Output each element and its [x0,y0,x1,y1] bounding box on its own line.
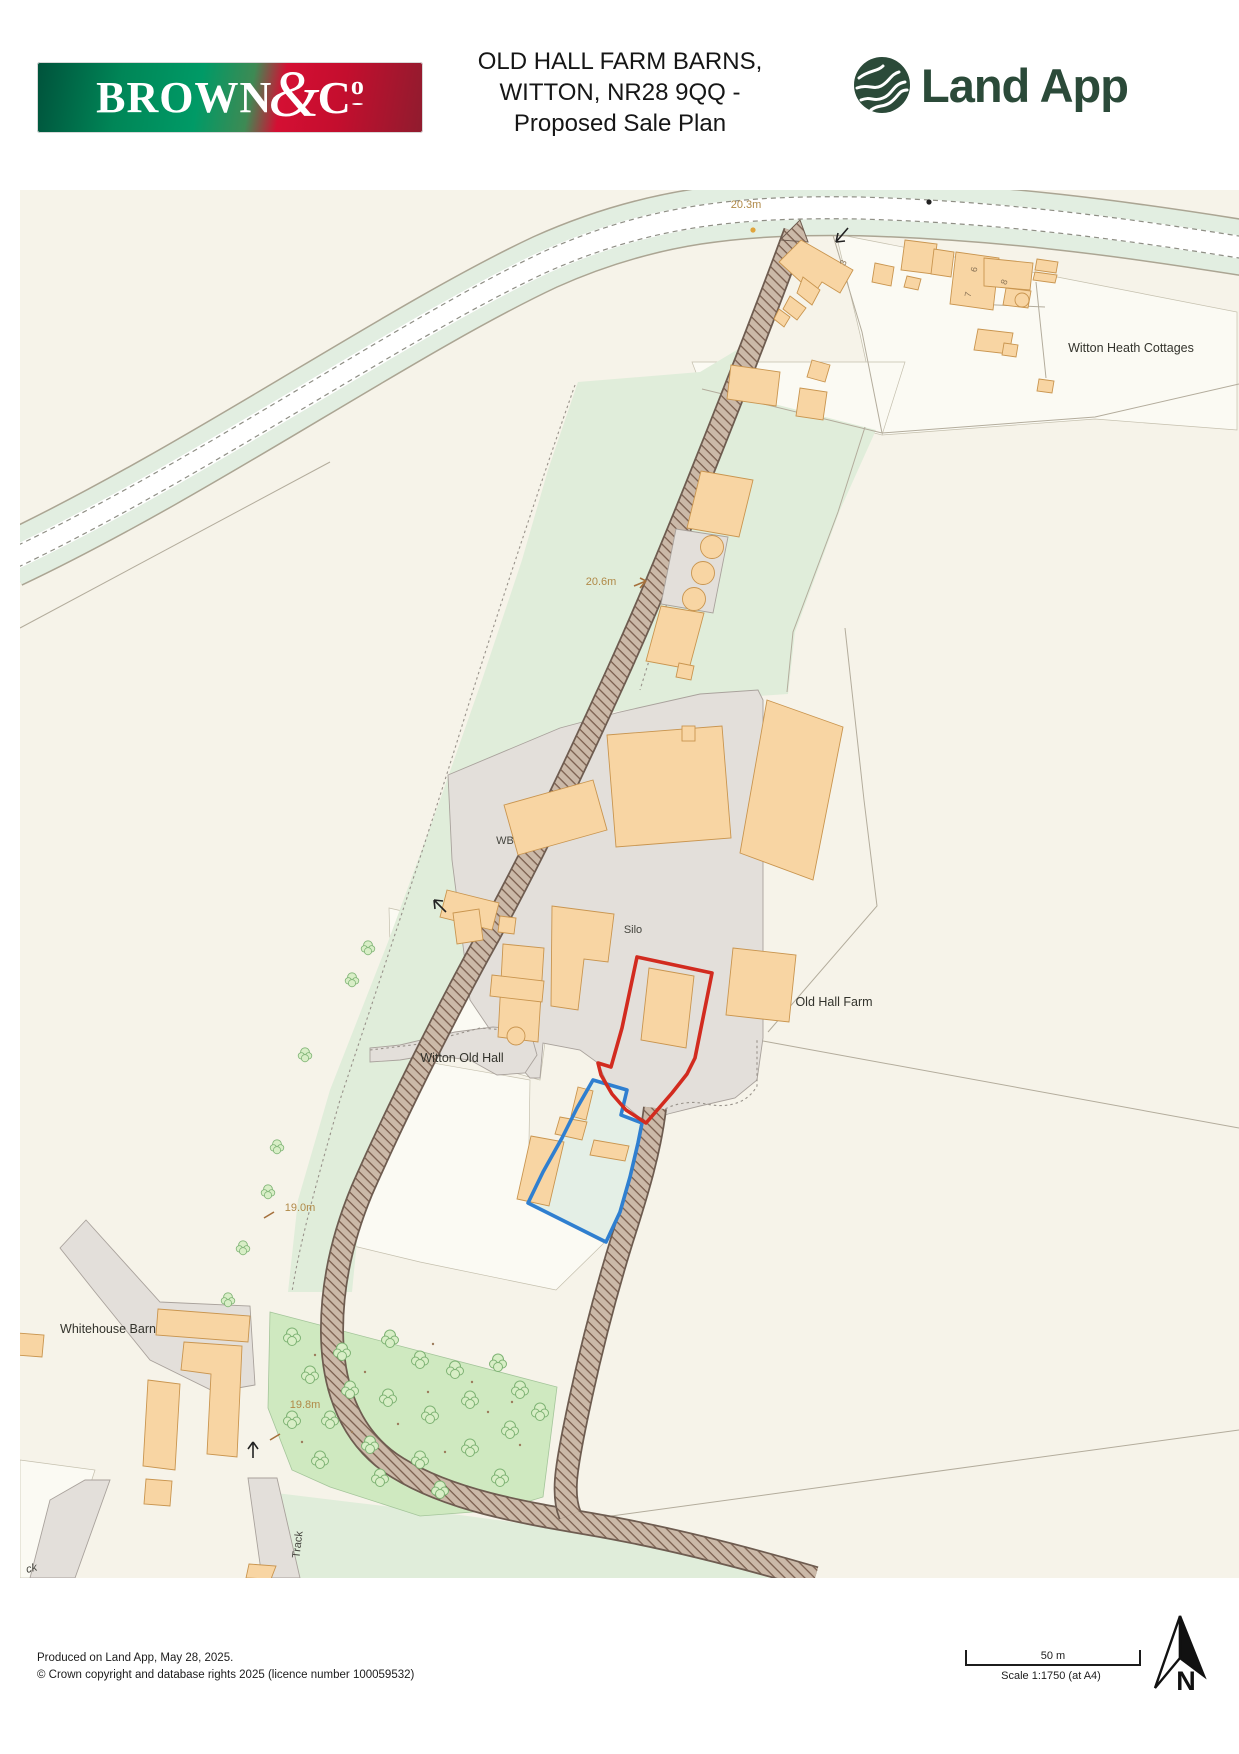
north-arrow-icon: N [1142,1614,1214,1694]
label-whitehouse-barn: Whitehouse Barn [60,1322,156,1336]
label-old-hall-farm: Old Hall Farm [795,995,872,1009]
label-witton-old-hall: Witton Old Hall [420,1051,503,1065]
elevation-label-20-3: 20.3m [731,199,762,211]
copyright-text: © Crown copyright and database rights 20… [37,1669,414,1681]
produced-on-text: Produced on Land App, May 28, 2025. [37,1652,233,1664]
sale-plan-map: 20.3m 20.6m 19.0m 19.8m Witton Heath Cot… [0,0,1239,1754]
elevation-label-20-6: 20.6m [586,576,617,588]
north-arrow: N [1142,1614,1214,1699]
map-canvas: 20.3m 20.6m 19.0m 19.8m Witton Heath Cot… [10,190,1239,1579]
label-silo: Silo [624,924,642,936]
label-witton-heath-cottages: Witton Heath Cottages [1068,341,1194,355]
scale-bar-label: 50 m [1041,1650,1065,1662]
label-wb: WB [496,835,514,847]
elevation-label-19-0: 19.0m [285,1202,316,1214]
road-spot-marker [750,227,755,232]
junction-marker-dot [926,199,931,204]
north-letter: N [1176,1666,1196,1694]
scale-bar: 50 m [965,1650,1141,1666]
elevation-label-19-8: 19.8m [290,1399,321,1411]
scale-ratio-text: Scale 1:1750 (at A4) [965,1670,1137,1682]
